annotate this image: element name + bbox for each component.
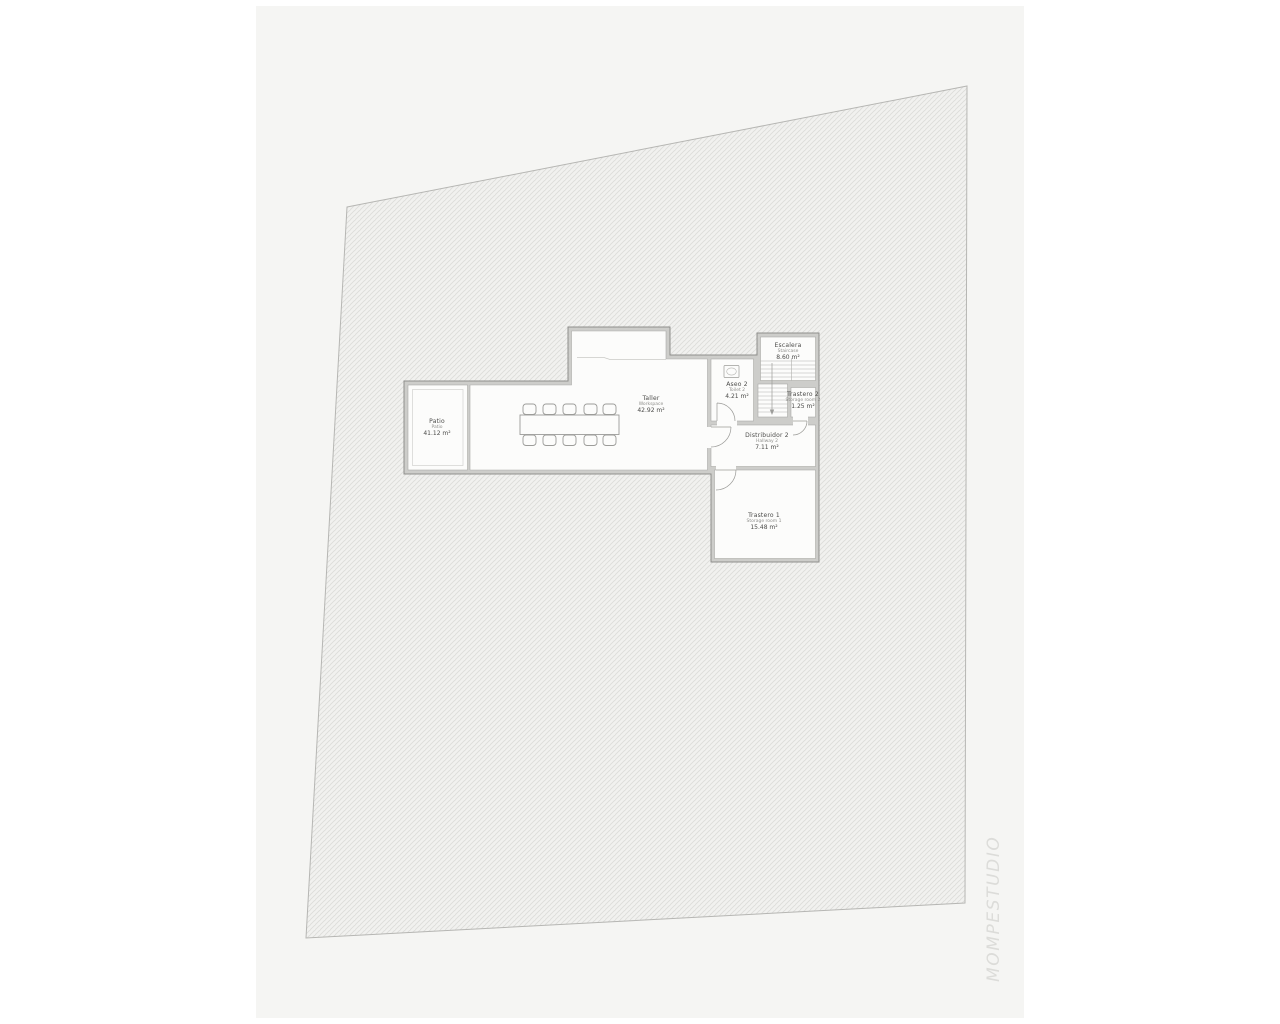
door-gap-aseo-2: [717, 421, 737, 426]
lot-boundary: [306, 86, 967, 938]
room-trastero-1: [715, 470, 816, 559]
chair: [523, 404, 536, 415]
chair: [603, 404, 616, 415]
chair: [584, 435, 597, 446]
room-patio: [408, 385, 468, 470]
room-distribuidor-2: [711, 425, 816, 467]
floor-plan-page: Patio Patio 41.12 m² Taller Workspace 42…: [0, 0, 1280, 1024]
floor-plan-svg: [0, 0, 1280, 1024]
chair: [523, 435, 536, 446]
door-gap-taller: [707, 427, 712, 448]
chair: [543, 404, 556, 415]
table: [520, 415, 619, 435]
chair: [543, 435, 556, 446]
studio-watermark: MOMPESTUDIO: [984, 848, 1004, 982]
chair: [603, 435, 616, 446]
chair: [563, 435, 576, 446]
room-trastero-2: [791, 388, 816, 418]
sink: [724, 366, 739, 378]
chair: [563, 404, 576, 415]
chair: [584, 404, 597, 415]
room-escalera: [761, 337, 816, 381]
